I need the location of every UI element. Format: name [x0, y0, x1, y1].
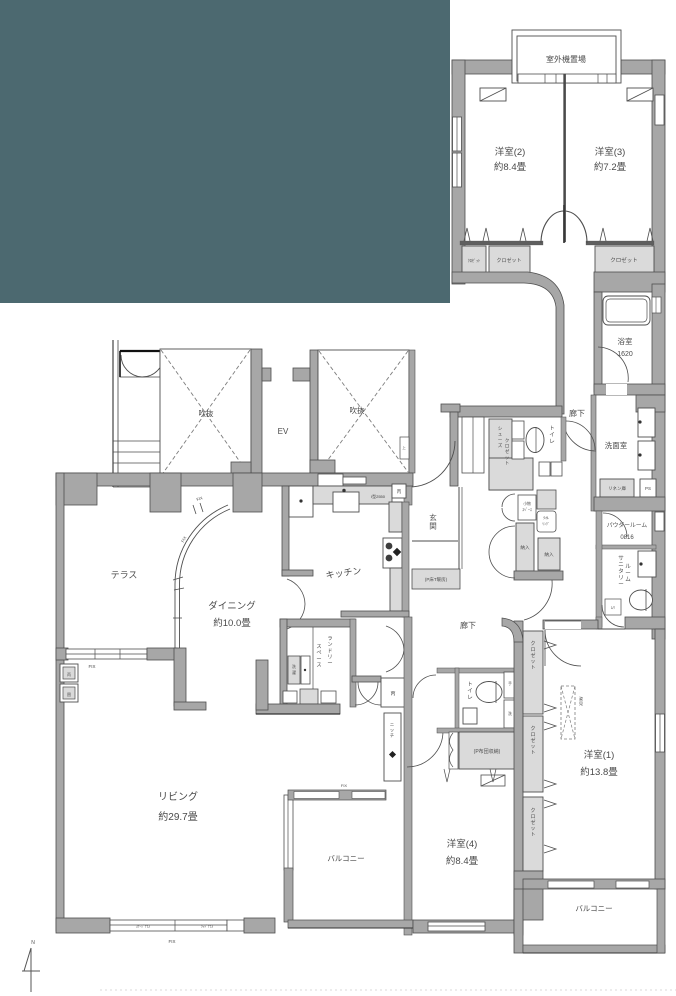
svg-text:クロゼット: クロゼット	[496, 257, 521, 264]
svg-text:ス: ス	[316, 662, 321, 669]
svg-text:ｳｯﾄﾞﾃﾗｽ: ｳｯﾄﾞﾃﾗｽ	[201, 924, 214, 929]
svg-text:ニ: ニ	[390, 722, 395, 727]
svg-text:小物: 小物	[523, 501, 531, 506]
svg-text:ズ: ズ	[498, 442, 503, 449]
svg-text:関: 関	[429, 522, 437, 531]
svg-text:ー: ー	[327, 661, 332, 667]
svg-text:ラ: ラ	[327, 635, 332, 642]
svg-text:浴室: 浴室	[618, 336, 633, 346]
svg-text:ッ: ッ	[505, 455, 510, 460]
svg-text:ム: ム	[625, 576, 631, 583]
svg-text:囲: 囲	[67, 692, 71, 697]
svg-text:ﾘﾝｸﾞ: ﾘﾝｸﾞ	[542, 521, 549, 526]
svg-text:FIX: FIX	[341, 783, 348, 788]
svg-text:クロゼット: クロゼット	[610, 256, 638, 264]
svg-text:(P布団収納): (P布団収納)	[474, 748, 501, 755]
svg-text:ｸﾛｾﾞｯﾄ: ｸﾛｾﾞｯﾄ	[468, 258, 481, 263]
svg-text:手: 手	[508, 681, 512, 686]
svg-text:姿: 姿	[579, 695, 583, 701]
svg-text:ゼ: ゼ	[530, 737, 535, 744]
svg-text:バルコニー: バルコニー	[575, 904, 612, 913]
svg-text:約8.4畳: 約8.4畳	[446, 855, 479, 867]
svg-text:ト: ト	[530, 665, 535, 671]
svg-text:ス: ス	[316, 643, 321, 650]
svg-text:レ: レ	[549, 439, 555, 445]
svg-text:約13.8畳: 約13.8畳	[580, 766, 618, 778]
svg-text:納入: 納入	[544, 551, 554, 558]
svg-text:洋室(1): 洋室(1)	[584, 749, 615, 761]
svg-text:廊下: 廊下	[460, 620, 476, 630]
svg-text:ニ: ニ	[618, 562, 624, 569]
svg-text:洗面室: 洗面室	[605, 440, 628, 450]
svg-text:I型2550: I型2550	[371, 493, 386, 499]
svg-text:ゼ: ゼ	[530, 652, 535, 659]
svg-text:約7.2畳: 約7.2畳	[594, 161, 627, 173]
svg-text:ュ: ュ	[498, 432, 503, 437]
svg-text:ド: ド	[327, 648, 332, 654]
svg-text:吹抜: 吹抜	[350, 405, 365, 415]
svg-text:リ: リ	[618, 576, 624, 582]
svg-text:FIX: FIX	[88, 664, 95, 669]
svg-text:濯: 濯	[292, 669, 296, 675]
svg-text:吹抜: 吹抜	[199, 408, 214, 418]
svg-text:ダイニング: ダイニング	[208, 600, 256, 612]
svg-text:ロ: ロ	[505, 444, 510, 449]
svg-text:ッ: ッ	[390, 728, 395, 733]
svg-text:約10.0畳: 約10.0畳	[213, 617, 251, 629]
svg-text:イ: イ	[549, 433, 555, 439]
svg-text:ｽﾃｰｼﾞﾃﾗｽ: ｽﾃｰｼﾞﾃﾗｽ	[136, 924, 150, 929]
svg-text:ト: ト	[505, 460, 510, 465]
svg-text:ー: ー	[316, 656, 321, 662]
svg-text:洋室(4): 洋室(4)	[447, 838, 478, 850]
svg-text:ゼ: ゼ	[530, 819, 535, 826]
svg-text:ト: ト	[530, 750, 535, 756]
svg-text:タ: タ	[618, 567, 624, 575]
svg-text:リネン庫: リネン庫	[608, 485, 626, 492]
svg-text:洗: 洗	[508, 711, 512, 716]
svg-text:玄: 玄	[429, 512, 437, 522]
svg-text:上: 上	[402, 445, 406, 450]
svg-text:洋室(3): 洋室(3)	[595, 146, 626, 158]
svg-text:シ: シ	[498, 426, 503, 431]
svg-text:EV: EV	[278, 427, 289, 436]
svg-text:リ: リ	[327, 655, 332, 661]
svg-text:ゼ: ゼ	[505, 448, 510, 454]
svg-text:約8.4畳: 約8.4畳	[494, 161, 527, 173]
svg-text:イ: イ	[467, 689, 473, 695]
svg-text:パウダールーム: パウダールーム	[607, 521, 648, 529]
svg-text:ト: ト	[467, 682, 473, 688]
svg-text:ト: ト	[549, 426, 555, 432]
svg-text:リビング: リビング	[158, 790, 198, 803]
svg-text:洋室(2): 洋室(2)	[495, 146, 526, 158]
svg-text:丙: 丙	[390, 691, 395, 697]
svg-text:納入: 納入	[520, 544, 530, 551]
svg-text:PS: PS	[645, 486, 651, 491]
svg-text:ﾑﾘ: ﾑﾘ	[611, 605, 615, 610]
svg-text:バルコニー: バルコニー	[327, 854, 364, 863]
svg-text:ｽﾍﾟｰｽ: ｽﾍﾟｰｽ	[522, 507, 532, 512]
svg-text:ト: ト	[530, 832, 535, 838]
svg-text:ペ: ペ	[316, 649, 321, 656]
svg-text:テラス: テラス	[111, 570, 138, 580]
svg-text:ル: ル	[625, 564, 631, 570]
svg-text:ン: ン	[327, 642, 332, 648]
svg-text:約29.7畳: 約29.7畳	[158, 810, 197, 823]
svg-text:FIX: FIX	[168, 939, 175, 944]
svg-text:チ: チ	[390, 733, 395, 738]
svg-text:サ: サ	[618, 555, 624, 562]
svg-text:ﾀｵﾙ: ﾀｵﾙ	[543, 515, 549, 520]
svg-text:洗: 洗	[292, 663, 296, 669]
svg-text:廊下: 廊下	[569, 408, 585, 418]
svg-text:ー: ー	[498, 437, 503, 442]
svg-text:N: N	[31, 940, 35, 946]
svg-text:丙: 丙	[67, 672, 71, 677]
svg-text:(P床T暖房): (P床T暖房)	[425, 576, 448, 583]
svg-text:レ: レ	[467, 695, 473, 701]
svg-text:ー: ー	[618, 582, 624, 588]
svg-text:室外機置場: 室外機置場	[546, 54, 586, 64]
svg-text:ー: ー	[625, 571, 631, 577]
